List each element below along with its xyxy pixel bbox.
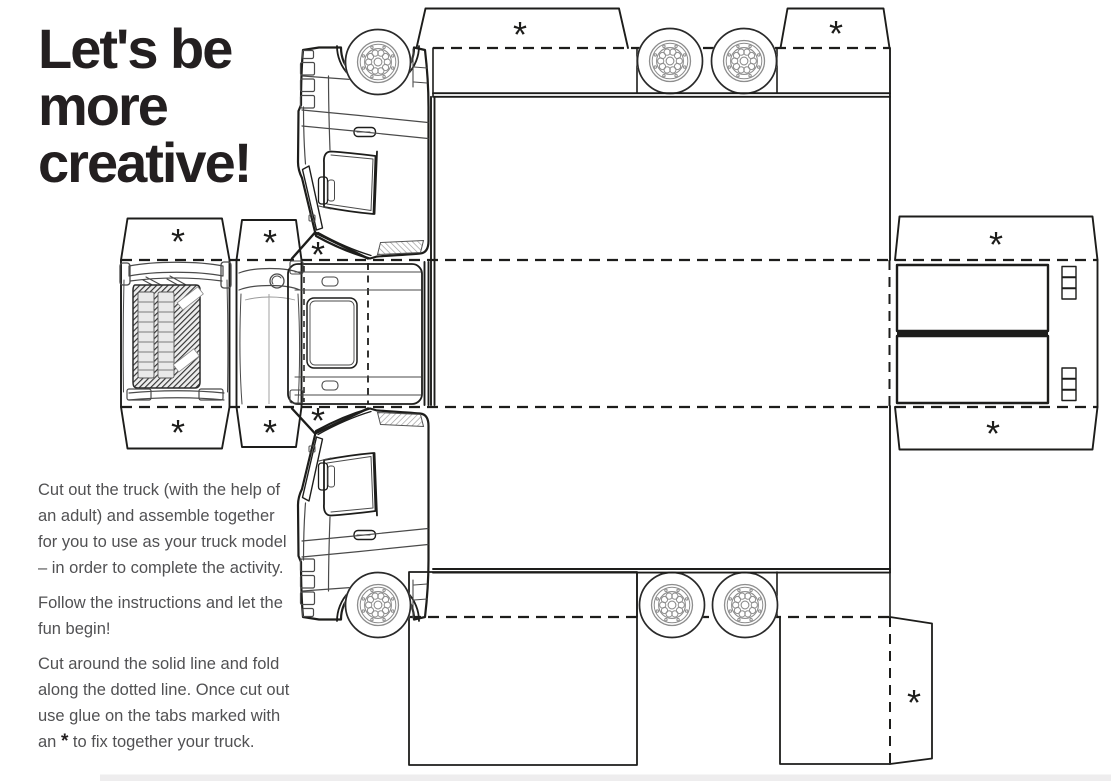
instruction-paragraph-1: Cut out the truck (with the help of an a… <box>38 477 296 581</box>
glue-tab-asterisk: * <box>171 221 185 262</box>
glue-tab-asterisk: * <box>311 234 325 275</box>
glue-tab-asterisk: * <box>989 224 1003 265</box>
glue-tab-asterisk: * <box>263 222 277 263</box>
instructions-text: Cut out the truck (with the help of an a… <box>38 477 296 764</box>
glue-tab-asterisk: * <box>829 13 843 54</box>
door-hinges <box>1062 267 1076 401</box>
instruction-p3-after: to fix together your truck. <box>68 733 254 751</box>
bottom-flap-large <box>409 572 637 765</box>
glue-tab-asterisk: * <box>263 412 277 453</box>
page-bottom-strip <box>100 775 1111 781</box>
bumper <box>129 391 224 400</box>
cab-side-view-bottom <box>298 409 429 639</box>
cab-rear-fold-lines <box>431 97 435 405</box>
glue-tab-asterisk: * <box>986 413 1000 454</box>
glue-tab-asterisk: * <box>513 14 527 55</box>
door-lower <box>897 336 1048 403</box>
roof-handle <box>322 277 338 286</box>
activity-sheet-page: Let's be more creative! <box>0 0 1111 781</box>
wheel-strip-lines <box>433 48 890 617</box>
glue-tab-asterisk: * <box>311 400 325 441</box>
trailer-wheels <box>637 28 779 639</box>
bottom-flap-right <box>780 617 890 764</box>
glue-tab-asterisk: * <box>171 412 185 453</box>
roof-handle <box>322 381 338 390</box>
door-upper <box>897 265 1048 331</box>
windshield-cowl <box>129 262 223 276</box>
cab-side-view-top <box>298 29 429 259</box>
trailer-body-edges <box>433 48 890 573</box>
sunroof <box>307 298 357 368</box>
glue-tab-asterisk: * <box>907 682 921 723</box>
instruction-paragraph-2: Follow the instructions and let the fun … <box>38 590 296 642</box>
instruction-paragraph-3: Cut around the solid line and fold along… <box>38 651 296 755</box>
